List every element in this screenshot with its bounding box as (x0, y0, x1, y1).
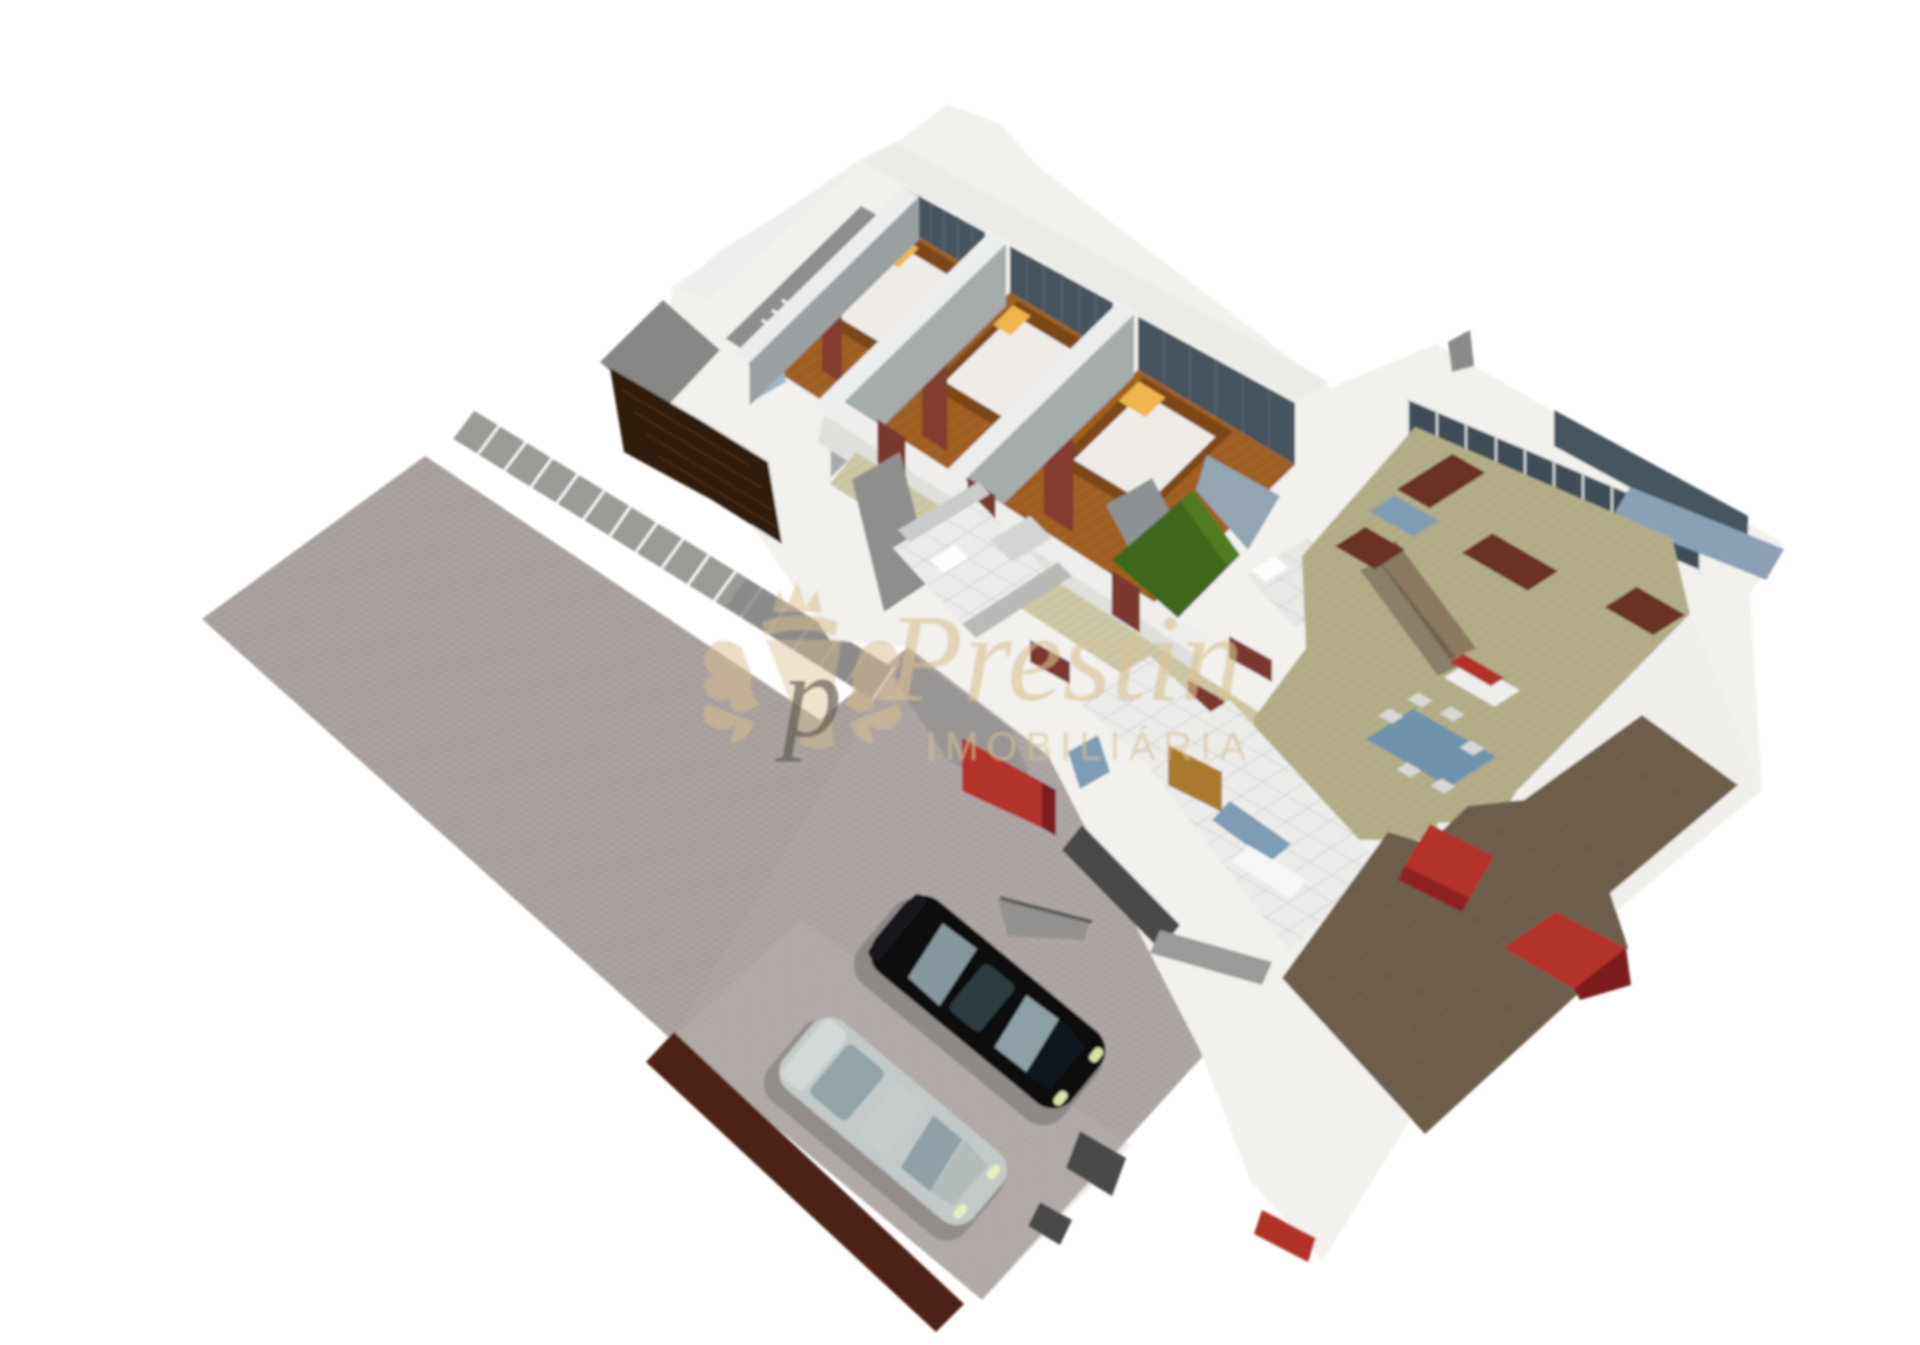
svg-text:IMOBILIÁRIA: IMOBILIÁRIA (926, 724, 1254, 769)
svg-text:p: p (774, 629, 842, 762)
svg-text:Prestin: Prestin (886, 590, 1243, 728)
